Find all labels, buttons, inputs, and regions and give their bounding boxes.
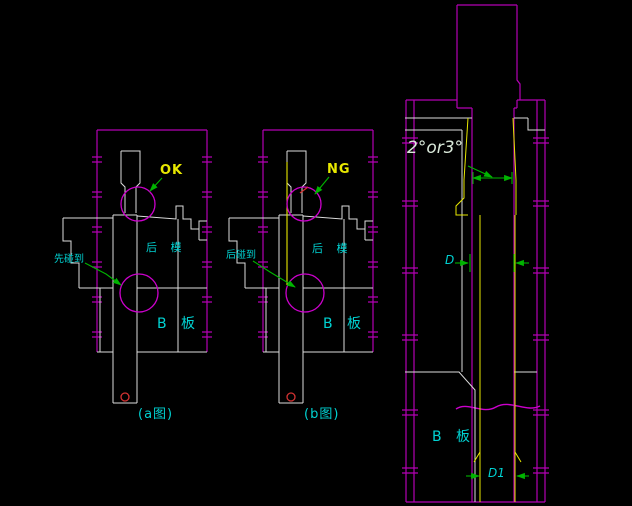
figure-b-result-label: NG: [327, 163, 351, 176]
figure-a-rear-mold-label: 后 模: [146, 242, 187, 253]
figure-b-caption: (b图): [304, 408, 339, 421]
figure-a-b-plate-label: B 板: [157, 317, 200, 331]
figure-a-contact-note: 先碰到: [54, 255, 84, 265]
figure-a-result-label: OK: [160, 164, 183, 177]
figure-b-contact-note: 后碰到: [226, 251, 256, 261]
figure-a-caption: (a图): [138, 408, 173, 421]
figure-b-b-plate-label: B 板: [323, 317, 366, 331]
figure-c-dim-d1-label: D1: [488, 467, 505, 479]
figure-b-pin-center-mark: [287, 393, 295, 401]
figure-c-break-line: [456, 404, 540, 409]
figure-b-ng-contact-mark: [300, 187, 308, 193]
figure-c-b-plate-label: B 板: [432, 430, 475, 444]
figure-c-dim-d-label: D: [445, 254, 454, 266]
figure-b-outline: [229, 151, 373, 403]
cad-drawing: OK NG 后 模 后 模 B 板 B 板 B 板 先碰到 后碰到 (a图) (…: [0, 0, 632, 506]
figure-b-rear-mold-label: 后 模: [312, 243, 353, 254]
figure-a-outline: [63, 151, 207, 403]
figure-a-pin-center-mark: [121, 393, 129, 401]
figure-c-outline: [405, 118, 545, 502]
figure-c-pin-magenta: [457, 5, 520, 502]
figure-c-draft-angle-label: 2°or3°: [407, 140, 463, 157]
